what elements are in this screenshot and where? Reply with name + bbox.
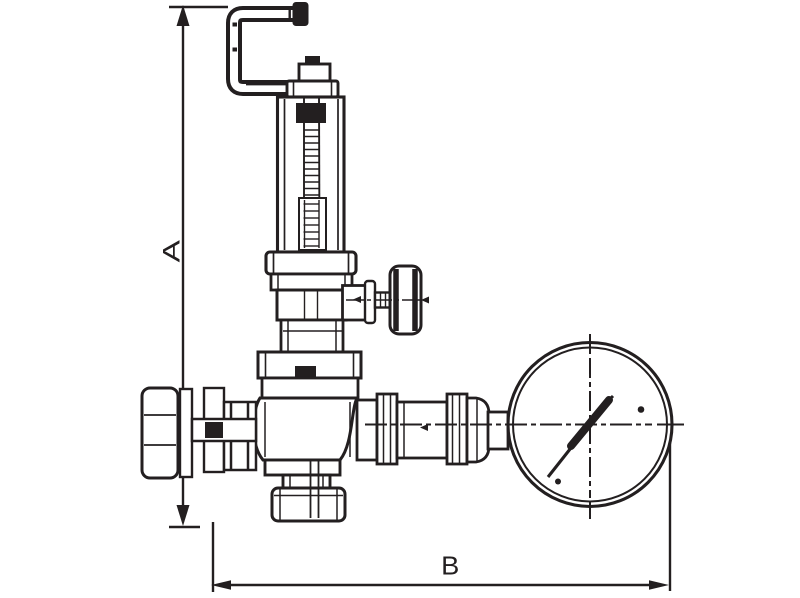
svg-text:B: B	[441, 551, 459, 580]
svg-text:A: A	[158, 240, 186, 263]
